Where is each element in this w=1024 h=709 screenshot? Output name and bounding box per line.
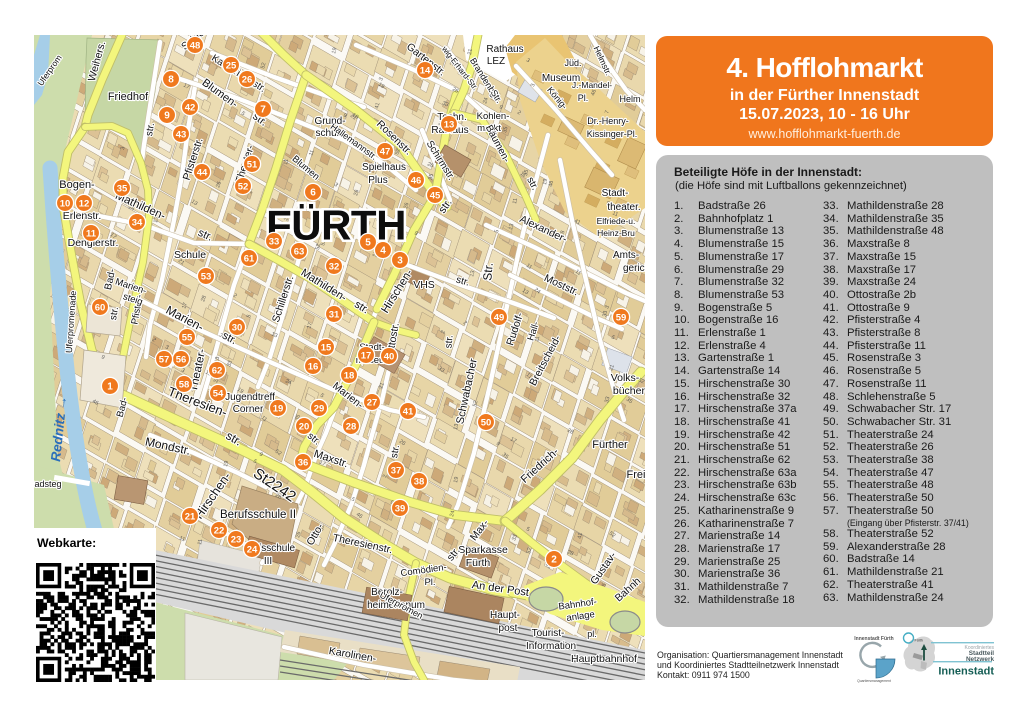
svg-text:11: 11	[86, 228, 97, 239]
svg-text:Elfriede-u.: Elfriede-u.	[597, 216, 636, 226]
svg-text:Fürther: Fürther	[592, 439, 628, 451]
svg-text:15: 15	[321, 342, 332, 353]
svg-text:16: 16	[308, 361, 319, 372]
svg-text:12: 12	[79, 198, 90, 209]
svg-text:Pl.: Pl.	[424, 577, 435, 588]
svg-text:24: 24	[247, 544, 258, 555]
svg-text:9: 9	[164, 110, 170, 121]
svg-text:54: 54	[213, 388, 224, 399]
svg-text:38: 38	[414, 476, 425, 487]
svg-text:58: 58	[179, 379, 190, 390]
svg-text:Information: Information	[526, 641, 576, 652]
svg-text:4: 4	[380, 245, 386, 256]
svg-text:46: 46	[411, 175, 422, 186]
svg-text:42: 42	[185, 102, 196, 113]
svg-text:27: 27	[367, 397, 378, 408]
svg-text:Innenstadt: Innenstadt	[938, 666, 994, 678]
svg-text:Spielhaus: Spielhaus	[362, 162, 406, 173]
svg-text:18: 18	[344, 370, 355, 381]
svg-text:Jugendtreff: Jugendtreff	[225, 392, 275, 403]
svg-text:33: 33	[602, 310, 609, 317]
svg-text:20: 20	[299, 421, 310, 432]
svg-text:35: 35	[117, 183, 128, 194]
svg-text:Friedhof: Friedhof	[108, 91, 149, 103]
svg-text:63: 63	[294, 246, 305, 257]
svg-text:Stadt-: Stadt-	[602, 188, 629, 199]
svg-text:str.: str.	[108, 306, 121, 321]
svg-text:Sparkasse: Sparkasse	[458, 544, 508, 556]
svg-text:Bogen-: Bogen-	[59, 179, 95, 191]
svg-text:43: 43	[176, 129, 187, 140]
svg-text:LEZ: LEZ	[487, 56, 505, 67]
svg-text:52: 52	[238, 181, 249, 192]
svg-text:Helm: Helm	[619, 94, 640, 104]
svg-text:29: 29	[314, 403, 325, 414]
svg-text:Corner: Corner	[233, 404, 264, 415]
svg-text:Plus: Plus	[368, 175, 387, 186]
svg-text:55: 55	[182, 332, 193, 343]
svg-text:35: 35	[523, 169, 530, 176]
svg-text:53: 53	[201, 271, 212, 282]
svg-text:Kissinger-Pl.: Kissinger-Pl.	[587, 129, 638, 139]
svg-text:51: 51	[247, 159, 258, 170]
svg-text:37: 37	[391, 465, 402, 476]
svg-text:str.: str.	[144, 122, 157, 137]
svg-text:Netzwerk: Netzwerk	[966, 656, 995, 663]
svg-text:Haupt-: Haupt-	[490, 610, 520, 621]
svg-text:Kohlen-: Kohlen-	[477, 111, 510, 122]
svg-text:Pl.: Pl.	[578, 93, 589, 103]
svg-text:14: 14	[420, 65, 431, 76]
svg-text:5: 5	[365, 237, 371, 248]
svg-text:47: 47	[380, 146, 391, 157]
svg-text:59: 59	[616, 312, 627, 323]
svg-text:57: 57	[159, 354, 170, 365]
svg-text:gericht: gericht	[623, 263, 645, 274]
svg-text:Tourist-: Tourist-	[532, 628, 565, 639]
svg-text:Str.: Str.	[480, 262, 496, 281]
svg-text:Rathaus: Rathaus	[486, 44, 523, 55]
svg-text:Innenstadt Fürth: Innenstadt Fürth	[854, 636, 893, 642]
svg-text:25: 25	[226, 60, 237, 71]
svg-text:bücherei: bücherei	[613, 385, 645, 397]
svg-text:Volks-: Volks-	[611, 372, 640, 384]
svg-text:40: 40	[384, 351, 395, 362]
svg-text:post: post	[499, 623, 518, 634]
svg-text:11: 11	[197, 539, 204, 546]
svg-text:46: 46	[548, 180, 555, 187]
svg-text:7: 7	[260, 104, 266, 115]
svg-text:22: 22	[214, 525, 225, 536]
svg-text:44: 44	[197, 167, 208, 178]
svg-text:13: 13	[444, 119, 455, 130]
svg-text:Amts-: Amts-	[613, 250, 639, 261]
svg-text:Badsteg: Badsteg	[34, 479, 62, 489]
svg-text:Schule: Schule	[174, 249, 206, 261]
svg-text:11: 11	[512, 198, 519, 205]
svg-text:39: 39	[395, 503, 406, 514]
svg-text:Dr.-Henry-: Dr.-Henry-	[587, 116, 629, 126]
svg-text:1: 1	[107, 381, 113, 392]
svg-text:J.-Mandel-: J.-Mandel-	[572, 80, 612, 90]
svg-text:30: 30	[232, 322, 243, 333]
svg-text:32: 32	[329, 261, 340, 272]
svg-text:28: 28	[346, 421, 357, 432]
svg-text:31: 31	[329, 309, 340, 320]
svg-text:26: 26	[242, 74, 253, 85]
svg-text:Hauptbahnhof: Hauptbahnhof	[571, 653, 637, 665]
svg-text:19: 19	[453, 476, 460, 483]
svg-text:VHS: VHS	[413, 279, 435, 291]
svg-text:6: 6	[310, 187, 316, 198]
svg-text:41: 41	[577, 532, 584, 539]
svg-text:62: 62	[212, 365, 223, 376]
svg-text:41: 41	[403, 406, 414, 417]
svg-text:23: 23	[231, 534, 242, 545]
svg-text:36: 36	[298, 457, 309, 468]
svg-text:3: 3	[397, 255, 403, 266]
svg-text:19: 19	[223, 460, 230, 467]
svg-text:34: 34	[132, 217, 143, 228]
svg-text:56: 56	[176, 354, 187, 365]
svg-text:50: 50	[481, 417, 492, 428]
svg-text:45: 45	[430, 190, 441, 201]
svg-text:17: 17	[361, 350, 372, 361]
svg-text:19: 19	[273, 403, 284, 414]
svg-text:str.: str.	[443, 335, 455, 349]
svg-text:Fürth: Fürth	[915, 639, 923, 643]
svg-text:35: 35	[428, 173, 435, 180]
svg-text:11: 11	[283, 159, 290, 166]
svg-text:60: 60	[95, 302, 106, 313]
svg-text:2: 2	[551, 554, 557, 565]
svg-text:III: III	[264, 556, 272, 567]
svg-text:48: 48	[190, 40, 201, 51]
svg-text:21: 21	[185, 511, 196, 522]
svg-text:8: 8	[168, 74, 174, 85]
svg-text:str.: str.	[389, 444, 402, 459]
svg-text:Jüd.: Jüd.	[564, 58, 581, 68]
svg-text:61: 61	[244, 253, 255, 264]
svg-text:33: 33	[269, 236, 280, 247]
svg-text:49: 49	[494, 312, 505, 323]
svg-text:Fürth: Fürth	[466, 557, 491, 569]
svg-text:Frei: Frei	[627, 469, 645, 481]
svg-text:21: 21	[467, 48, 474, 55]
svg-text:Heinz-Bru: Heinz-Bru	[597, 228, 635, 238]
svg-text:Quartiersmanagement: Quartiersmanagement	[857, 679, 891, 683]
svg-text:19: 19	[542, 178, 549, 185]
svg-text:Berufsschule II: Berufsschule II	[220, 509, 296, 521]
svg-text:theater.: theater.	[607, 202, 640, 213]
svg-text:pl.: pl.	[587, 629, 597, 639]
svg-text:10: 10	[60, 198, 71, 209]
